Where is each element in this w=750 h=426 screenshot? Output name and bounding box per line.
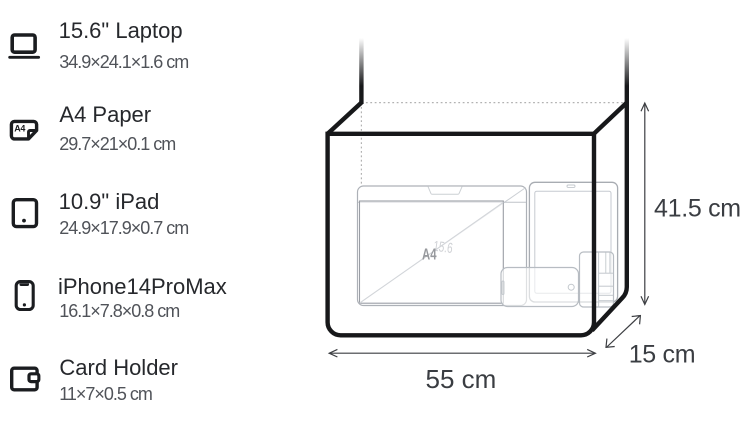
svg-text:15 cm: 15 cm (629, 341, 696, 369)
svg-text:41.5 cm: 41.5 cm (654, 195, 741, 223)
svg-text:55 cm: 55 cm (426, 364, 497, 394)
svg-text:A4: A4 (422, 247, 437, 264)
